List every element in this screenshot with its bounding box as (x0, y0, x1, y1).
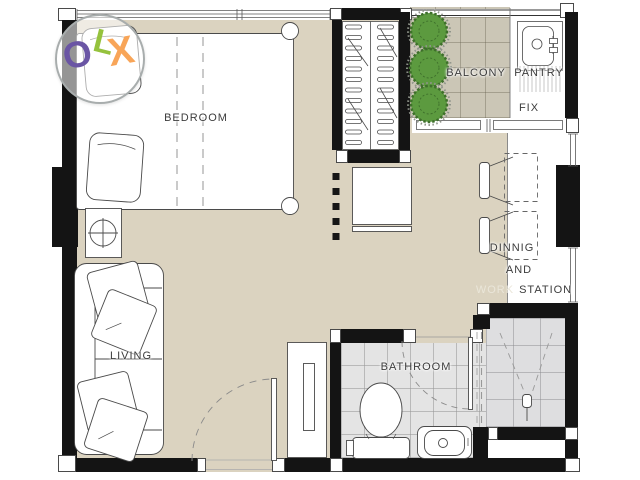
wardrobe (343, 22, 399, 150)
floor-plan-canvas: BEDROOM BALCONY PANTRY FIX DINNIG AND WO… (0, 0, 640, 480)
dining-chair (480, 157, 514, 205)
pantry-label: PANTRY (489, 67, 589, 79)
olx-watermark-logo: O L X (55, 14, 145, 104)
counter-unit (353, 168, 412, 232)
pantry-sink (518, 22, 563, 71)
bathroom-door (402, 337, 473, 410)
dotted-partition (333, 173, 340, 240)
dining-label-work: WORK (476, 284, 514, 296)
bathroom-label: BATHROOM (366, 361, 466, 373)
bush-icon (408, 10, 450, 52)
dining-label-line2: AND (469, 264, 569, 276)
dining-label-station: STATION (519, 284, 572, 296)
bedroom-label: BEDROOM (146, 112, 246, 124)
window-fix-lines (417, 119, 563, 132)
bush-icon (408, 83, 450, 125)
window-right-lines (568, 134, 578, 302)
shower-area (477, 332, 552, 424)
fix-label: FIX (479, 102, 579, 114)
dining-label-line3: WORKSTATION (444, 284, 604, 296)
shoe-cabinet (288, 343, 327, 458)
bathroom-sink (418, 427, 472, 459)
dining-label-line1: DINNIG (462, 242, 562, 254)
shower-head-icon (523, 395, 532, 408)
bed-pillow (86, 132, 145, 203)
entrance-door (192, 379, 277, 470)
nightstand (86, 209, 122, 258)
olx-letter-x: X (105, 30, 137, 73)
living-label: LIVING (81, 350, 181, 362)
toilet (347, 383, 410, 459)
